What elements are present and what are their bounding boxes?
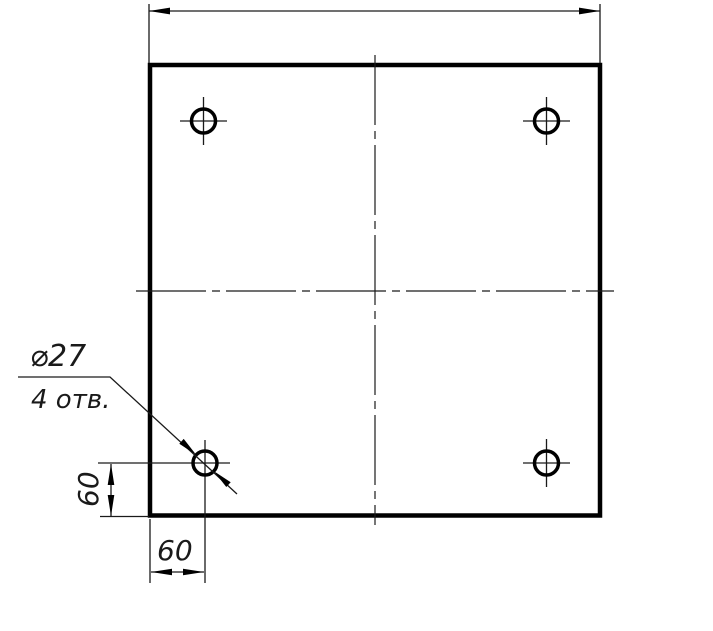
arrowhead-left <box>151 569 172 576</box>
dimension-top-overall <box>149 4 600 63</box>
leader-arrowhead-upper <box>179 439 196 455</box>
plate-drawing-svg: ⌀27 4 отв. 60 60 <box>0 0 713 631</box>
hole-bottom-right <box>523 439 570 487</box>
dimension-value-left: 60 <box>72 471 105 507</box>
dimension-value-bottom: 60 <box>157 534 193 567</box>
technical-drawing-canvas: ⌀27 4 отв. 60 60 <box>0 0 713 631</box>
arrowhead-left <box>149 8 170 15</box>
callout-count-label: 4 отв. <box>31 385 110 415</box>
hole-top-right <box>523 97 570 145</box>
hole-top-left <box>180 97 227 145</box>
arrowhead-top <box>108 464 115 485</box>
leader-arrowhead-lower <box>214 471 231 487</box>
callout-diameter-label: ⌀27 <box>30 339 86 374</box>
dimension-left-vertical-60: 60 <box>72 464 149 517</box>
dimension-bottom-horizontal-60: 60 <box>150 519 204 583</box>
arrowhead-bottom <box>108 495 115 516</box>
arrowhead-right <box>579 8 600 15</box>
hole-callout-leader: ⌀27 4 отв. <box>18 339 237 494</box>
arrowhead-right <box>183 569 204 576</box>
